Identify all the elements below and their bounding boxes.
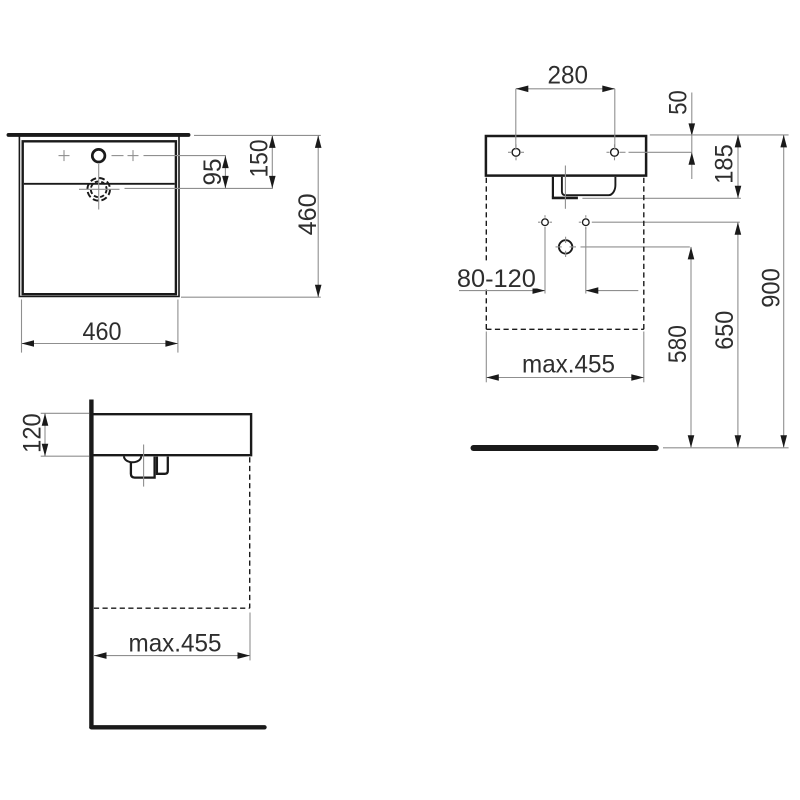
svg-text:185: 185 [711, 144, 739, 184]
svg-text:280: 280 [548, 61, 589, 89]
svg-text:max.455: max.455 [522, 350, 615, 378]
svg-text:50: 50 [665, 90, 693, 115]
svg-text:650: 650 [711, 311, 739, 350]
svg-text:580: 580 [664, 325, 692, 363]
svg-text:80-120: 80-120 [457, 265, 536, 293]
svg-text:120: 120 [19, 413, 47, 453]
svg-text:95: 95 [199, 159, 227, 186]
svg-text:460: 460 [294, 193, 322, 235]
svg-text:150: 150 [246, 140, 274, 178]
svg-text:max.455: max.455 [129, 629, 222, 657]
svg-text:900: 900 [758, 268, 786, 308]
svg-text:460: 460 [83, 318, 122, 346]
